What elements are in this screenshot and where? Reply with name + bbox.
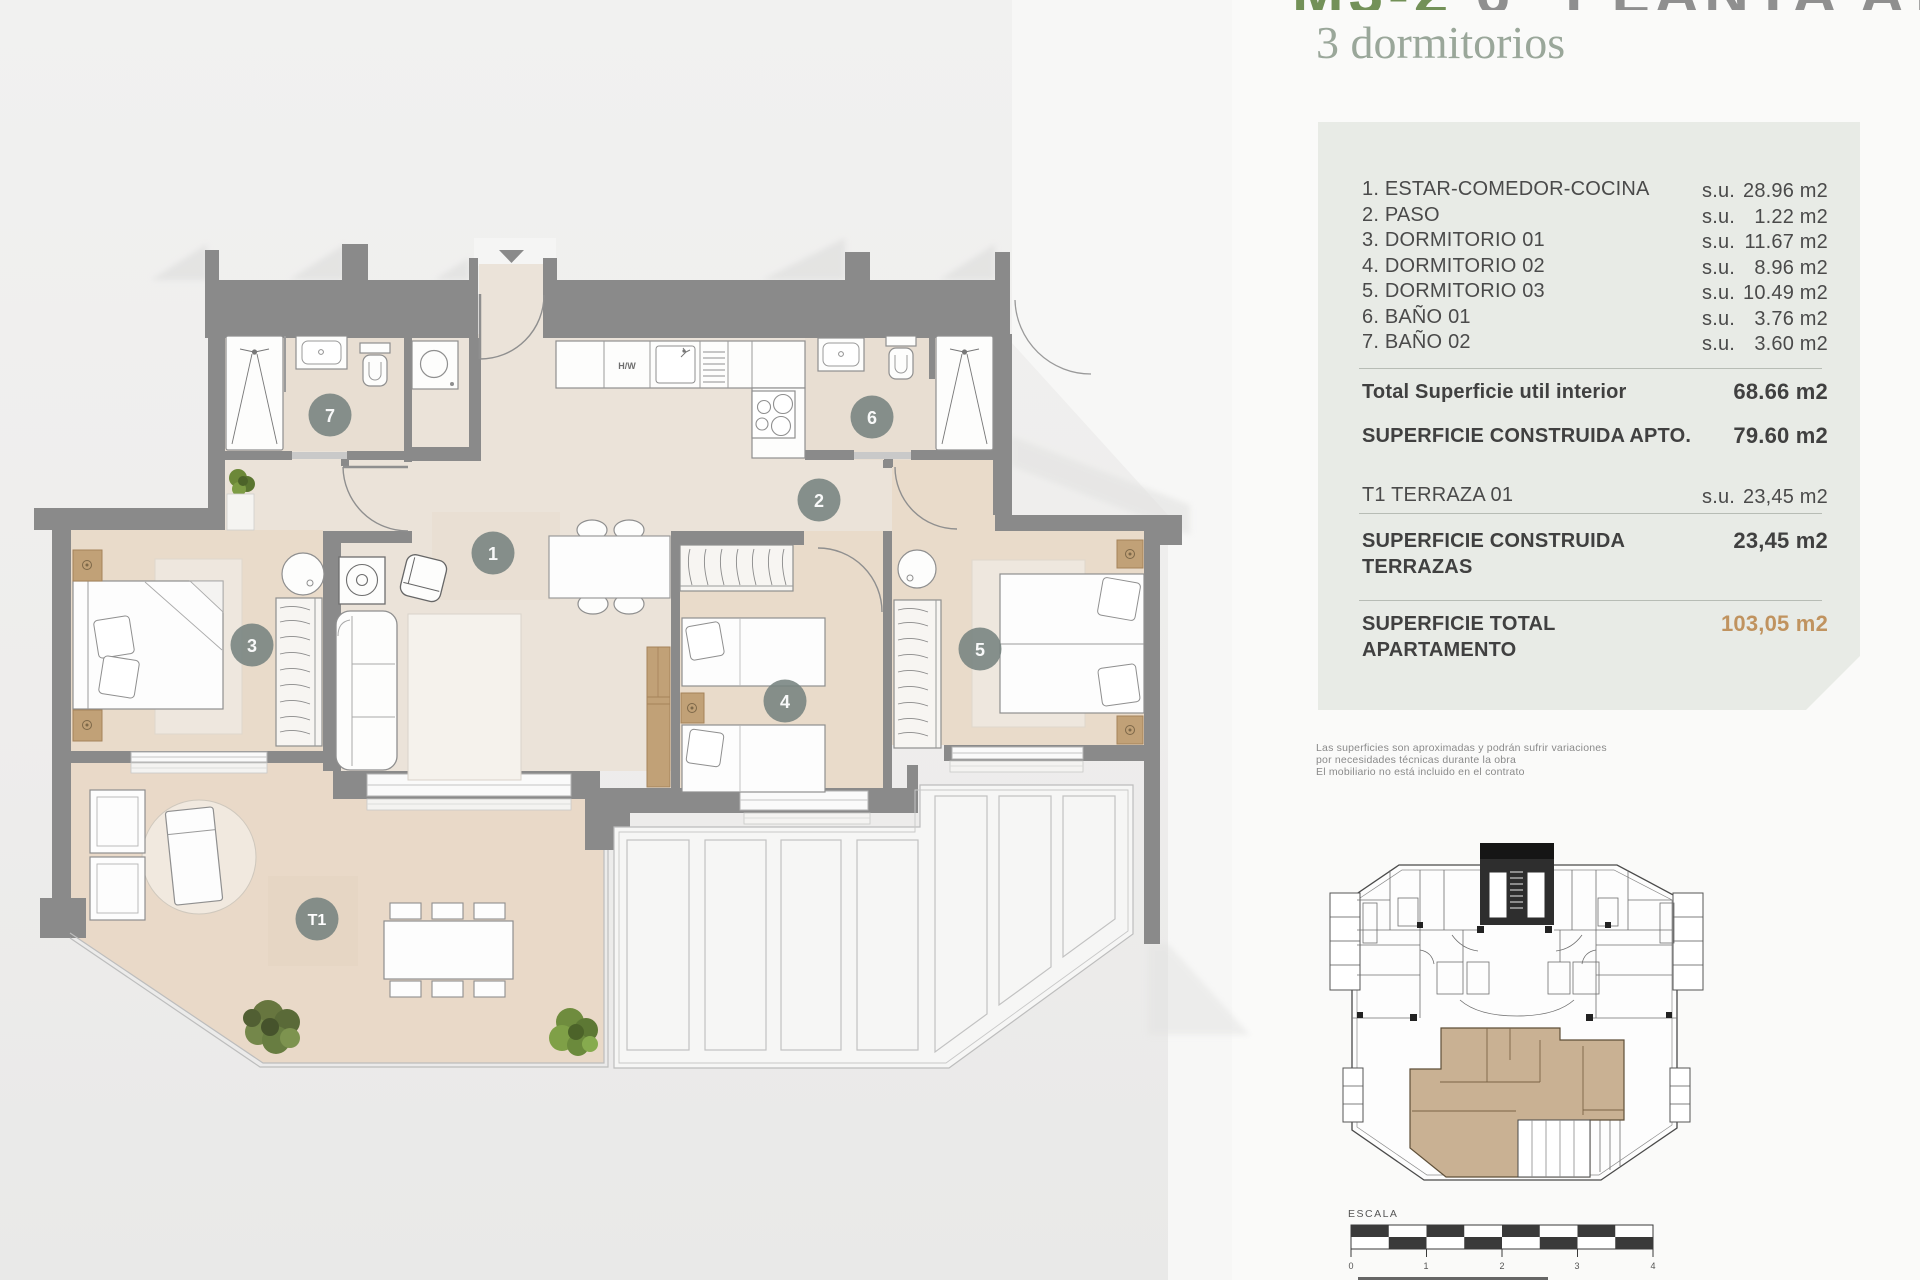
svg-text:3: 3 (247, 636, 257, 656)
svg-text:5: 5 (975, 640, 985, 660)
svg-text:1: 1 (1423, 1261, 1428, 1271)
svg-text:0: 0 (1348, 1261, 1353, 1271)
svg-text:ESCALA: ESCALA (1348, 1208, 1398, 1220)
svg-text:2: 2 (1499, 1261, 1504, 1271)
svg-text:4: 4 (780, 692, 790, 712)
svg-text:1: 1 (488, 544, 498, 564)
svg-text:T1: T1 (308, 912, 327, 929)
svg-text:H/W: H/W (618, 361, 636, 371)
svg-text:3: 3 (1574, 1261, 1579, 1271)
svg-text:4: 4 (1650, 1261, 1655, 1271)
svg-text:2: 2 (814, 491, 824, 511)
svg-text:6: 6 (867, 408, 877, 428)
svg-text:7: 7 (325, 406, 335, 426)
